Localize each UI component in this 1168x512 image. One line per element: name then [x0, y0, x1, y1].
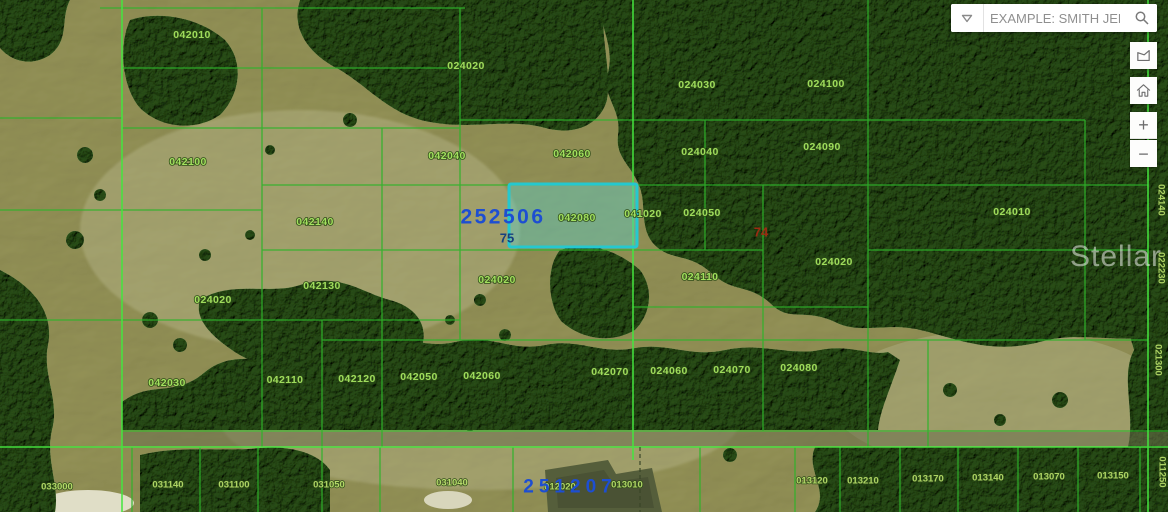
parcel-id-label: 042110: [267, 374, 304, 386]
parcel-id-label: 042140: [296, 216, 333, 228]
section-number-label: 252506: [460, 206, 545, 229]
lot-number-label: 75: [500, 231, 514, 246]
zoom-in-button[interactable]: +: [1130, 112, 1157, 139]
home-extent-button[interactable]: [1130, 77, 1157, 104]
search-icon: [1134, 10, 1150, 26]
parcel-id-label: 013150: [1097, 471, 1129, 482]
parcel-id-label: 031140: [152, 480, 183, 491]
search-button[interactable]: [1126, 4, 1157, 32]
parcel-id-label: 024140: [1156, 184, 1167, 216]
parcel-id-label: 042120: [338, 373, 375, 385]
parcel-id-label: 042030: [148, 377, 185, 389]
minus-icon: −: [1138, 145, 1149, 163]
parcel-id-label: 024020: [478, 274, 515, 286]
parcel-id-label: 024040: [681, 146, 718, 158]
parcel-id-label: 024030: [678, 79, 715, 91]
parcel-id-label: 024050: [683, 207, 720, 219]
parcel-id-label: 041020: [624, 208, 661, 220]
parcel-id-label: 024020: [815, 256, 852, 268]
parcel-id-label: 024080: [780, 362, 817, 374]
parcel-id-label: 024060: [650, 365, 687, 377]
home-icon: [1135, 82, 1152, 99]
satellite-map-image[interactable]: 0420100240200240300241000421000420400420…: [0, 0, 1168, 512]
search-type-dropdown[interactable]: [951, 4, 984, 32]
parcel-id-label: 033000: [41, 482, 73, 493]
polygon-select-icon: [1135, 47, 1152, 64]
parcel-id-label: 031050: [313, 480, 345, 491]
parcel-id-label: 024110: [682, 271, 719, 283]
parcel-id-label: 042050: [400, 371, 437, 383]
parcel-id-label: 013140: [972, 473, 1004, 484]
parcel-id-label: 042060: [553, 148, 590, 160]
parcel-id-label: 042060: [463, 370, 500, 382]
parcel-id-label: 031040: [436, 478, 468, 489]
select-area-button[interactable]: [1130, 42, 1157, 69]
caret-down-icon: [961, 14, 973, 23]
parcel-id-label: 024020: [447, 60, 484, 72]
parcel-id-label: 013070: [1033, 472, 1065, 483]
parcel-id-label: 042010: [173, 29, 210, 41]
parcel-id-label: 011250: [1157, 456, 1168, 487]
parcel-id-label: 013210: [847, 476, 879, 487]
parcel-id-label: 031100: [218, 480, 249, 491]
search-input[interactable]: [984, 4, 1126, 32]
dirt-road: [122, 432, 1168, 446]
parcel-id-label: 042040: [428, 150, 465, 162]
plus-icon: +: [1138, 116, 1149, 134]
parcel-id-label: 042080: [558, 212, 595, 224]
parcel-id-label: 024100: [807, 78, 844, 90]
parcel-id-label: 042100: [169, 156, 206, 168]
parcel-id-label: 013120: [796, 476, 828, 487]
parcel-id-label: 042070: [591, 366, 628, 378]
parcel-id-label: 021300: [1153, 344, 1164, 376]
parcel-id-label: 024090: [803, 141, 840, 153]
map-note-label: 74: [754, 225, 769, 240]
section-number-label: 251207: [523, 477, 616, 498]
map-canvas[interactable]: 0420100240200240300241000421000420400420…: [0, 0, 1168, 512]
parcel-id-label: 022230: [1156, 252, 1167, 284]
parcel-id-label: 024020: [194, 294, 231, 306]
parcel-id-label: 042130: [303, 280, 340, 292]
zoom-out-button[interactable]: −: [1130, 140, 1157, 167]
search-bar: [951, 4, 1157, 32]
parcel-id-label: 024070: [713, 364, 750, 376]
parcel-id-label: 024010: [993, 206, 1030, 218]
parcel-id-label: 013170: [912, 474, 944, 485]
